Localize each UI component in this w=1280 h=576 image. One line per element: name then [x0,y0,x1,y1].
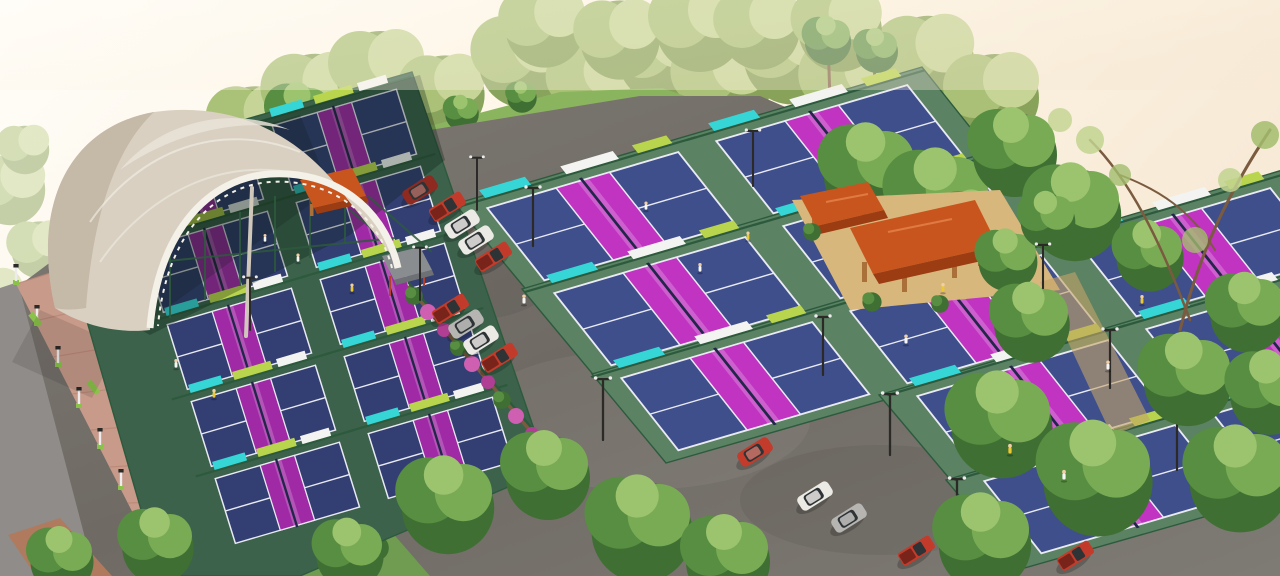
pickleball-complex-render: Aerial 3D architectural rendering of an … [0,0,1280,576]
haze-overlay [0,0,1280,90]
